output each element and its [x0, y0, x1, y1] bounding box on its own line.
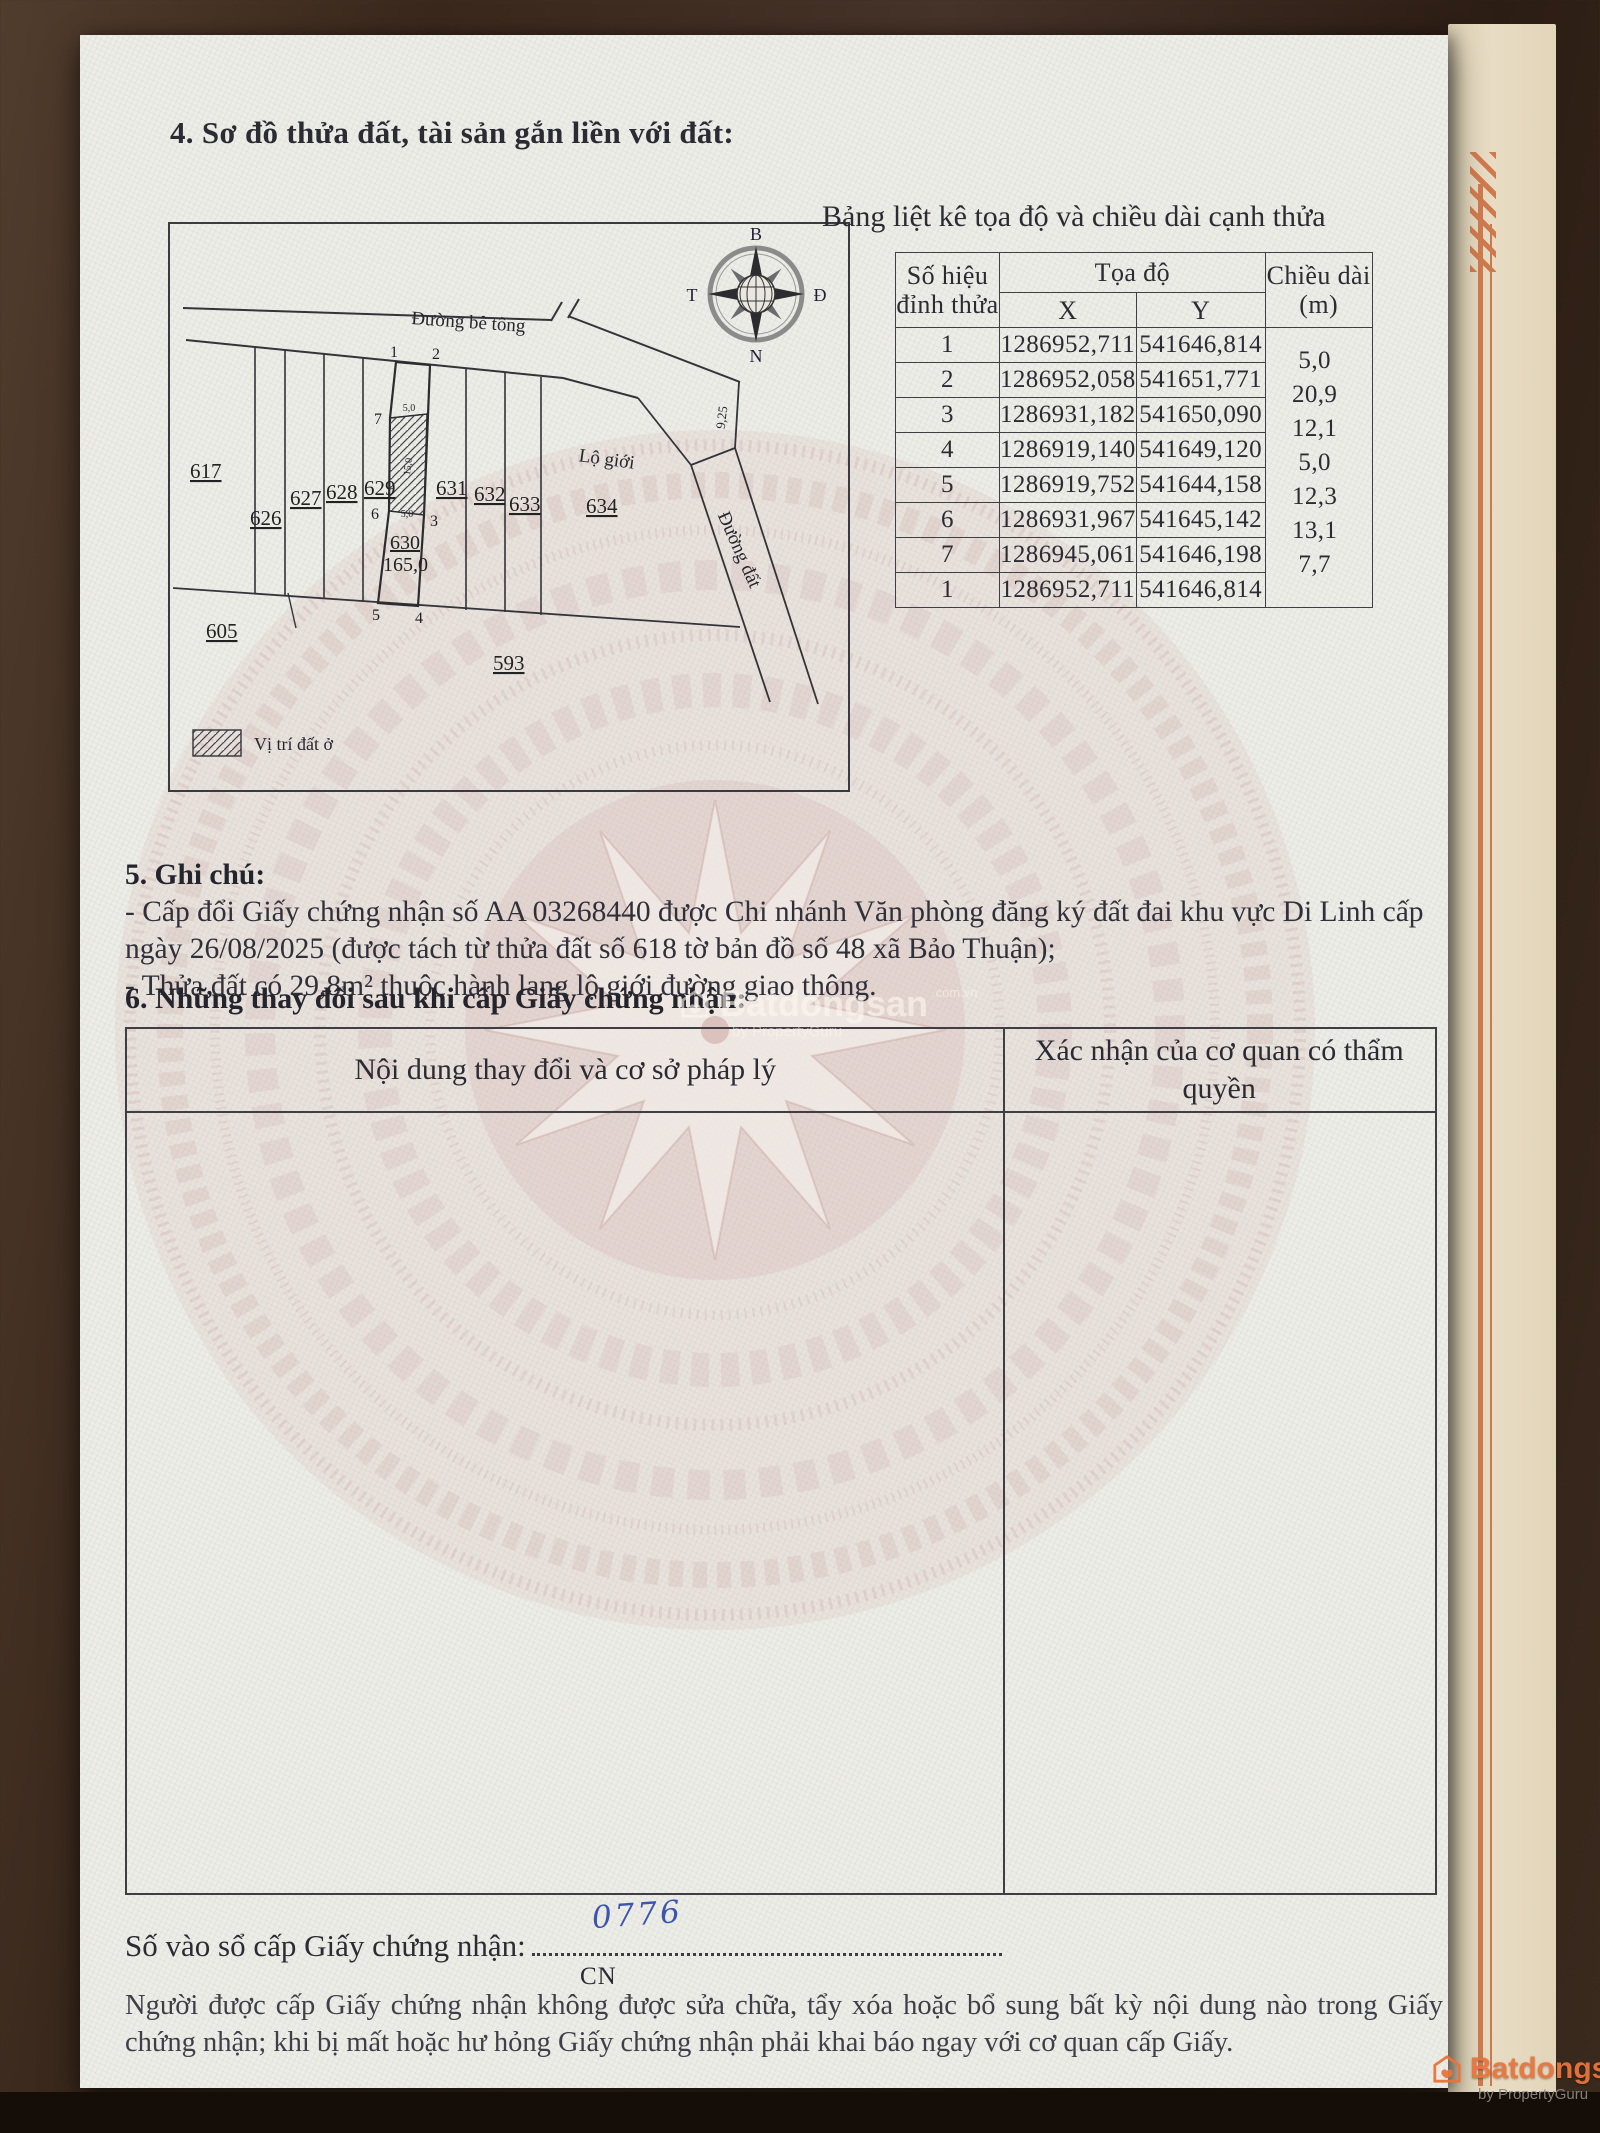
parcel-617: 617 [190, 459, 222, 483]
cell-vertex: 4 [896, 433, 1000, 468]
parcel-630-area: 165,0 [383, 554, 428, 576]
col-header-length-line1: Chiều dài [1266, 261, 1372, 290]
cell-y: 541644,158 [1136, 468, 1265, 503]
edge-length: 12,1 [1266, 414, 1364, 444]
watermark-domain: .com.vn [932, 985, 978, 1000]
parcel-634: 634 [586, 494, 618, 518]
vertex-4: 4 [415, 610, 423, 627]
cell-vertex: 1 [896, 328, 1000, 363]
parcel-631: 631 [436, 476, 468, 500]
back-page-ornament [1470, 152, 1496, 272]
edge-length: 5,0 [1266, 346, 1364, 376]
parcel-626: 626 [250, 506, 282, 530]
cell-x: 1286945,061 [1000, 538, 1137, 573]
cell-y: 541646,814 [1136, 328, 1265, 363]
watermark-by: by PropertyGuru [732, 1023, 984, 1040]
changes-table: Nội dung thay đổi và cơ sở pháp lý Xác n… [125, 1027, 1437, 1895]
cell-y: 541649,120 [1136, 433, 1265, 468]
footer-warning-note: Người được cấp Giấy chứng nhận không đượ… [125, 1987, 1443, 2061]
cell-x: 1286952,058 [1000, 363, 1137, 398]
corner-by: by PropertyGuru [1478, 2086, 1600, 2103]
section5-title: 5. Ghi chú: [125, 859, 265, 891]
parcel-630: 630 [390, 532, 420, 554]
col-header-length-line2: (m) [1266, 290, 1372, 319]
serial-label: Số vào sổ cấp Giấy chứng nhận: [125, 1928, 526, 1963]
cell-y: 541651,771 [1136, 363, 1265, 398]
cell-y: 541645,142 [1136, 503, 1265, 538]
batdongsan-logo-icon [1432, 2054, 1462, 2084]
dim-side: 15,0 [402, 457, 415, 476]
map-legend: Vị trí đất ở [193, 730, 333, 756]
dim-bottom: 5,0 [401, 509, 414, 520]
edge-length: 7,7 [1266, 550, 1364, 580]
compass-west: T [687, 285, 698, 305]
vertex-7: 7 [374, 411, 382, 428]
edge-925-label: 9,25 [713, 405, 731, 429]
cell-x: 1286931,967 [1000, 503, 1137, 538]
dirt-road-label: Đường đất [713, 508, 765, 591]
parcel-628: 628 [326, 480, 358, 504]
parcel-633: 633 [509, 492, 541, 516]
cell-x: 1286952,711 [1000, 573, 1137, 608]
cell-vertex: 7 [896, 538, 1000, 573]
cell-vertex: 3 [896, 398, 1000, 433]
back-page-border-stripe-thin [1490, 224, 1492, 2086]
table-row: 1 1286952,711 541646,814 5,0 20,9 12,1 5… [896, 328, 1373, 363]
vertex-1: 1 [390, 344, 398, 361]
watermark-corner: Batdongsan .com.vn by PropertyGuru [1432, 2052, 1600, 2103]
vertex-2: 2 [432, 346, 440, 363]
cell-vertex: 6 [896, 503, 1000, 538]
parcel-629: 629 [364, 476, 396, 500]
table-shadow-band [0, 2092, 1600, 2133]
cell-vertex: 2 [896, 363, 1000, 398]
batdongsan-logo-icon [680, 989, 710, 1019]
compass-south: N [750, 346, 763, 366]
back-page-edge [1448, 24, 1556, 2096]
section5-line1: - Cấp đổi Giấy chứng nhận số AA 03268440… [125, 896, 1424, 965]
col-header-x: X [1000, 293, 1137, 328]
compass-rose: B T Đ N [687, 224, 827, 366]
dim-top: 5,0 [403, 403, 416, 414]
cell-vertex: 1 [896, 573, 1000, 608]
serial-dotted-line: 0776 [532, 1923, 1002, 1956]
serial-handwritten-number: 0776 [591, 1894, 684, 1936]
parcel-map: Đường bê tông 9,25 Lộ giới Đường đất [168, 222, 850, 792]
cell-y: 541650,090 [1136, 398, 1265, 433]
legend-label: Vị trí đất ở [254, 734, 333, 754]
vertex-5: 5 [372, 607, 380, 624]
col-header-length: Chiều dài (m) [1265, 253, 1372, 328]
length-column: 5,0 20,9 12,1 5,0 12,3 13,1 7,7 [1265, 328, 1372, 608]
changes-col1-header: Nội dung thay đổi và cơ sở pháp lý [127, 1029, 1003, 1111]
cell-x: 1286952,711 [1000, 328, 1137, 363]
compass-east: Đ [814, 285, 827, 305]
coord-table: Số hiệu đỉnh thửa Tọa độ Chiều dài (m) X… [895, 252, 1373, 608]
vertex-3: 3 [430, 513, 438, 530]
parcel-605: 605 [206, 619, 238, 643]
parcel-593: 593 [493, 651, 525, 675]
vertex-6: 6 [371, 506, 379, 523]
coord-table-title: Bảng liệt kê tọa độ và chiều dài cạnh th… [822, 200, 1448, 234]
cell-y: 541646,814 [1136, 573, 1265, 608]
cell-y: 541646,198 [1136, 538, 1265, 573]
edge-length: 5,0 [1266, 448, 1364, 478]
section4-title: 4. Sơ đồ thửa đất, tài sản gắn liền với … [170, 115, 734, 151]
serial-line: Số vào sổ cấp Giấy chứng nhận:0776 [125, 1923, 1002, 1964]
watermark-center: Batdongsan .com.vn by PropertyGuru [680, 983, 984, 1040]
road-label: Đường bê tông [411, 308, 527, 337]
cell-x: 1286931,182 [1000, 398, 1137, 433]
section6-title: 6. Những thay đổi sau khi cấp Giấy chứng… [125, 982, 746, 1016]
parcel-632: 632 [474, 482, 506, 506]
parcel-627: 627 [290, 486, 322, 510]
compass-north: B [750, 224, 762, 244]
edge-length: 12,3 [1266, 482, 1364, 512]
changes-table-header-rule [127, 1111, 1435, 1113]
col-header-coords: Tọa độ [1000, 253, 1266, 293]
cell-x: 1286919,752 [1000, 468, 1137, 503]
cell-x: 1286919,140 [1000, 433, 1137, 468]
changes-table-divider [1003, 1029, 1005, 1893]
cell-vertex: 5 [896, 468, 1000, 503]
certificate-page: 4. Sơ đồ thửa đất, tài sản gắn liền với … [80, 35, 1448, 2088]
col-header-y: Y [1136, 293, 1265, 328]
edge-length: 20,9 [1266, 380, 1364, 410]
corner-brand: Batdongsan [1470, 2052, 1600, 2086]
watermark-brand: Batdongsan [720, 983, 928, 1025]
col-header-vertex: Số hiệu đỉnh thửa [896, 253, 1000, 328]
edge-length: 13,1 [1266, 516, 1364, 546]
changes-col2-header: Xác nhận của cơ quan có thẩm quyền [1003, 1029, 1435, 1111]
lo-gioi-label: Lộ giới [578, 445, 636, 474]
back-page-border-stripe [1478, 184, 1483, 2086]
